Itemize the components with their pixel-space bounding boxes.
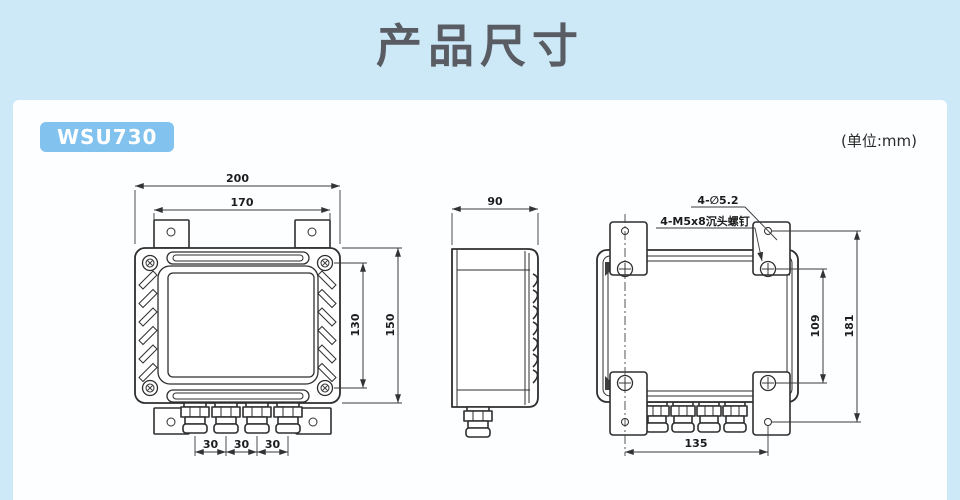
dim-109-label: 109 [809,315,822,338]
dim-30-label-2: 30 [234,438,250,451]
content-panel: WSU730 (单位:mm) 200 170 [13,100,947,500]
cable-gland [181,403,209,433]
dimension-bracket-width: 170 [154,196,330,220]
cable-gland [243,403,271,433]
front-view-drawing: 200 170 [113,170,423,470]
dim-200-label: 200 [226,172,249,185]
dim-130-label: 130 [349,313,362,336]
model-badge: WSU730 [40,122,174,152]
front-enclosure-body [135,248,340,403]
annotation-screw-label: 4-M5x8沉头螺钉 [660,214,750,228]
dim-181-label: 181 [843,315,856,338]
dim-30-label-3: 30 [265,438,281,451]
cable-glands [181,403,302,433]
dim-135-label: 135 [685,437,708,450]
cable-gland [212,403,240,433]
dimension-gland-pitch: 30 30 30 [195,436,288,456]
cable-gland [645,402,669,432]
back-view-drawing: 4-∅5.2 4-M5x8沉头螺钉 109 181 135 [595,180,925,470]
cable-gland [723,402,747,432]
screw [618,376,633,391]
cable-gland [274,403,302,433]
dim-170-label: 170 [231,196,254,209]
cable-glands [645,402,747,432]
cable-gland [671,402,695,432]
screw [618,262,633,277]
screw [761,376,776,391]
annotation-hole-label: 4-∅5.2 [697,194,738,207]
side-view-drawing: 90 [430,170,570,470]
cable-gland [697,402,721,432]
dim-90-label: 90 [487,195,503,208]
unit-note: (单位:mm) [841,130,917,151]
page-header: 产品尺寸 [0,0,960,86]
screw [761,262,776,277]
cable-gland [464,407,492,437]
top-mounting-tabs [154,220,330,248]
dimension-depth: 90 [452,195,538,245]
page-title: 产品尺寸 [376,10,584,76]
dim-150-label: 150 [384,313,397,336]
dim-30-label-1: 30 [203,438,219,451]
